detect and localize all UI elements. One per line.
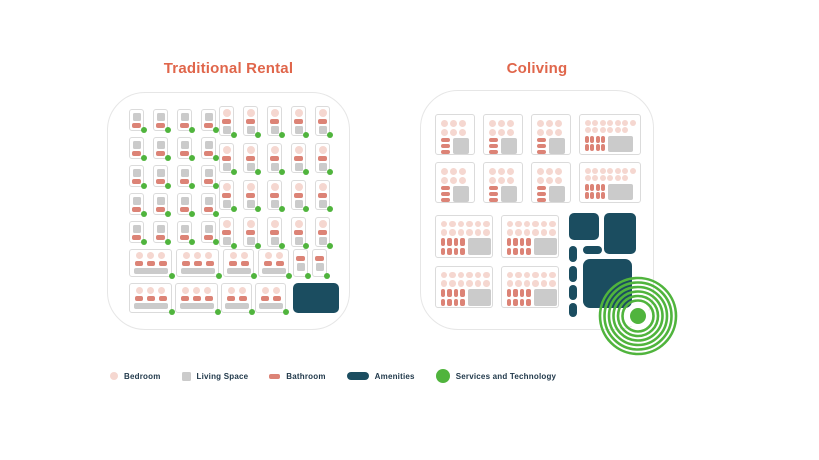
- bathroom-bar-icon: [489, 144, 498, 148]
- living-space-icon: [223, 163, 231, 171]
- bathroom-bar-icon: [526, 299, 531, 307]
- bathroom-bar-icon: [513, 238, 518, 246]
- bedroom-dot-icon: [585, 175, 591, 181]
- bathroom-bar-icon: [537, 186, 546, 190]
- bedroom-dot-icon: [319, 109, 327, 117]
- bathroom-bar-icon: [180, 207, 189, 212]
- legend-item: Services and Technology: [436, 369, 556, 383]
- bathroom-bar-icon: [489, 186, 498, 190]
- bedroom-dot-icon: [541, 221, 548, 228]
- amenities-block: [604, 213, 636, 254]
- bedroom-dot-icon: [546, 168, 553, 175]
- bedroom-dot-icon: [537, 129, 544, 136]
- living-space-icon: [319, 237, 327, 245]
- bedroom-dot-icon: [247, 183, 255, 191]
- bathroom-bar-icon: [441, 192, 450, 196]
- bathroom-bar-icon: [526, 238, 531, 246]
- service-dot-icon: [213, 183, 219, 189]
- bedroom-dot-icon: [600, 175, 606, 181]
- bathroom-bar-icon: [318, 193, 327, 198]
- bedroom-dot-icon: [441, 168, 448, 175]
- service-dot-icon: [231, 169, 237, 175]
- bedroom-dot-icon: [483, 272, 490, 279]
- bathroom-bar-icon: [520, 248, 525, 256]
- bathroom-bar-icon: [590, 136, 594, 143]
- bedroom-dot-icon: [295, 183, 303, 191]
- traditional-rental-building: [107, 92, 350, 330]
- bathroom-bar-icon: [460, 248, 465, 256]
- legend: BedroomLiving SpaceBathroomAmenitiesServ…: [110, 369, 556, 383]
- service-dot-icon: [165, 211, 171, 217]
- bedroom-dot-icon: [136, 287, 143, 294]
- service-dot-icon: [213, 211, 219, 217]
- bedroom-dot-icon: [592, 168, 598, 174]
- bedroom-dot-icon: [600, 120, 606, 126]
- service-dot-icon: [213, 155, 219, 161]
- bathroom-bar-icon: [596, 136, 600, 143]
- bathroom-bar-icon: [489, 138, 498, 142]
- bedroom-dot-icon: [615, 168, 621, 174]
- service-dot-icon: [169, 309, 175, 315]
- apartment-unit: [175, 283, 218, 313]
- bedroom-dot-icon: [271, 146, 279, 154]
- unit-part-row: [264, 261, 284, 266]
- bedroom-dot-icon: [147, 287, 154, 294]
- bathroom-bar-icon: [489, 150, 498, 154]
- bathroom-bar-icon: [180, 151, 189, 156]
- studio-unit: [153, 221, 168, 243]
- coliving-suite-unit: [579, 114, 641, 155]
- studio-unit: [267, 143, 282, 173]
- unit-part-row: [227, 296, 247, 301]
- bathroom-bar-icon: [441, 144, 450, 148]
- bedroom-dot-icon: [546, 120, 553, 127]
- bathroom-bar-icon: [441, 198, 450, 202]
- bathroom-bar-icon: [246, 156, 255, 161]
- living-space-icon: [271, 163, 279, 171]
- amenities-block: [569, 213, 599, 240]
- bedroom-dot-icon: [524, 280, 531, 287]
- bathroom-bar-icon: [222, 156, 231, 161]
- studio-unit: [201, 165, 216, 187]
- suite-lower-row: [441, 138, 469, 154]
- service-dot-icon: [165, 155, 171, 161]
- bathroom-bar-icon: [441, 138, 450, 142]
- bathroom-bar-icon: [441, 248, 446, 256]
- bathroom-bar-icon: [132, 207, 141, 212]
- unit-part-row: [136, 252, 165, 259]
- bathroom-bar-icon: [270, 193, 279, 198]
- apartment-unit: [176, 249, 219, 277]
- bedroom-dot-icon: [223, 183, 231, 191]
- bathroom-bar-icon: [318, 156, 327, 161]
- living-space-icon: [223, 237, 231, 245]
- studio-unit: [153, 137, 168, 159]
- service-dot-icon: [279, 206, 285, 212]
- bedroom-dot-icon: [466, 280, 473, 287]
- suite-lower-row: [441, 186, 469, 202]
- living-space-icon: [549, 138, 565, 154]
- bathroom-bar-icon: [526, 248, 531, 256]
- bedroom-dot-icon: [592, 175, 598, 181]
- bathroom-bar-icon: [264, 261, 272, 266]
- studio-unit: [243, 180, 258, 210]
- bedroom-dot-icon: [607, 120, 613, 126]
- studio-unit: [219, 106, 234, 136]
- service-dot-icon: [327, 132, 333, 138]
- bedroom-dot-icon: [319, 183, 327, 191]
- bedroom-dot-icon: [450, 120, 457, 127]
- bedroom-dot-icon: [194, 252, 201, 259]
- bedroom-dot-icon: [585, 120, 591, 126]
- bedroom-dot-icon: [507, 221, 514, 228]
- bathroom-bar-icon: [585, 192, 589, 199]
- bedroom-dot-icon: [204, 287, 211, 294]
- bedroom-dot-icon: [441, 221, 448, 228]
- service-dot-icon: [165, 183, 171, 189]
- bathroom-bar-icon: [276, 261, 284, 266]
- service-dot-icon: [303, 132, 309, 138]
- coliving-suite-unit: [435, 266, 493, 308]
- bedroom-dot-icon: [441, 272, 448, 279]
- bedroom-dot-icon: [319, 220, 327, 228]
- bedroom-dot-icon: [441, 120, 448, 127]
- bathroom-bar-icon: [537, 192, 546, 196]
- bedroom-dot-icon: [541, 280, 548, 287]
- living-space-icon: [157, 113, 165, 121]
- bedroom-dot-icon: [600, 168, 606, 174]
- bathroom-bar-icon: [537, 198, 546, 202]
- coliving-title: Coliving: [420, 60, 654, 77]
- bathroom-bar-icon: [222, 230, 231, 235]
- living-space-icon: [157, 141, 165, 149]
- bathroom-bar-icon: [489, 192, 498, 196]
- studio-unit: [243, 217, 258, 247]
- traditional-rental-title: Traditional Rental: [107, 60, 350, 77]
- unit-part-row: [182, 261, 214, 266]
- living-space-square-icon: [182, 372, 191, 381]
- bathroom-bar-column: [489, 186, 498, 202]
- bedroom-dot-grid: [537, 120, 562, 136]
- legend-label: Bedroom: [124, 372, 161, 381]
- living-space-icon: [223, 200, 231, 208]
- bathroom-bar-icon: [590, 192, 594, 199]
- studio-unit: [243, 143, 258, 173]
- living-space-icon: [271, 126, 279, 134]
- bedroom-dot-grid: [537, 168, 562, 184]
- bedroom-dot-icon: [441, 177, 448, 184]
- bathroom-bar-icon: [590, 144, 594, 151]
- bathroom-bar-icon: [204, 179, 213, 184]
- living-space-icon: [133, 197, 141, 205]
- bathroom-bar-icon: [156, 123, 165, 128]
- unit-part-row: [135, 261, 167, 266]
- living-space-icon: [157, 225, 165, 233]
- bedroom-dot-icon: [555, 129, 562, 136]
- bathroom-bar-grid: [585, 136, 606, 152]
- living-space-icon: [468, 238, 491, 255]
- bathroom-bar-icon: [222, 193, 231, 198]
- bedroom-dot-icon: [549, 221, 556, 228]
- bathroom-bar-icon: [601, 136, 605, 143]
- bedroom-dot-icon: [532, 280, 539, 287]
- bathroom-bar-icon: [596, 184, 600, 191]
- bedroom-dot-icon: [532, 229, 539, 236]
- studio-unit: [201, 221, 216, 243]
- bathroom-bar-icon: [315, 256, 324, 261]
- bathroom-bar-icon: [526, 289, 531, 297]
- living-space-icon: [205, 113, 213, 121]
- living-space-icon: [608, 184, 633, 200]
- bedroom-dot-icon: [537, 168, 544, 175]
- studio-unit: [291, 106, 306, 136]
- service-dot-icon: [189, 239, 195, 245]
- suite-lower-row: [507, 238, 557, 255]
- bathroom-bar-icon: [454, 248, 459, 256]
- unit-part-row: [262, 287, 280, 294]
- bedroom-dot-icon: [295, 109, 303, 117]
- bedroom-dot-icon: [271, 109, 279, 117]
- living-space-icon: [247, 126, 255, 134]
- bedroom-dot-grid: [441, 168, 466, 184]
- living-space-icon: [133, 113, 141, 121]
- service-dot-icon: [231, 206, 237, 212]
- service-dot-icon: [141, 239, 147, 245]
- bathroom-bar-icon: [132, 179, 141, 184]
- service-dot-icon: [189, 211, 195, 217]
- studio-unit: [267, 180, 282, 210]
- studio-unit: [291, 143, 306, 173]
- services-technology-target-icon: [595, 273, 681, 359]
- bedroom-dot-icon: [183, 252, 190, 259]
- bathroom-bar-icon: [601, 184, 605, 191]
- studio-unit: [315, 180, 330, 210]
- bathroom-bar-column: [537, 138, 546, 154]
- bedroom-dot-icon: [541, 272, 548, 279]
- bedroom-dot-icon: [607, 127, 613, 133]
- bathroom-bar-icon: [441, 186, 450, 190]
- studio-unit: [315, 217, 330, 247]
- bedroom-dot-icon: [622, 120, 628, 126]
- studio-unit: [177, 221, 192, 243]
- bedroom-dot-icon: [549, 280, 556, 287]
- bedroom-dot-icon: [630, 120, 636, 126]
- bathroom-bar-icon: [269, 374, 280, 379]
- bathroom-bar-icon: [596, 144, 600, 151]
- living-space-icon: [225, 303, 249, 309]
- bathroom-bar-grid: [507, 238, 531, 255]
- bathroom-bar-icon: [147, 296, 155, 301]
- service-dot-icon: [324, 273, 330, 279]
- bedroom-dot-icon: [600, 127, 606, 133]
- studio-unit: [291, 180, 306, 210]
- bedroom-dot-icon: [532, 221, 539, 228]
- bedroom-dot-icon: [295, 220, 303, 228]
- living-space-icon: [468, 289, 491, 306]
- bathroom-bar-icon: [246, 230, 255, 235]
- studio-unit: [177, 137, 192, 159]
- service-dot-icon: [255, 169, 261, 175]
- bathroom-bar-icon: [222, 119, 231, 124]
- living-space-icon: [295, 163, 303, 171]
- legend-item: Bedroom: [110, 372, 161, 381]
- studio-unit: [177, 109, 192, 131]
- service-dot-icon: [255, 132, 261, 138]
- living-space-icon: [133, 225, 141, 233]
- bathroom-bar-grid: [441, 289, 465, 306]
- coliving-suite-unit: [501, 215, 559, 258]
- bedroom-dot-icon: [475, 272, 482, 279]
- studio-unit: [291, 217, 306, 247]
- bathroom-bar-icon: [135, 261, 143, 266]
- bathroom-bar-icon: [460, 238, 465, 246]
- unit-part-row: [181, 296, 213, 301]
- bathroom-bar-icon: [204, 123, 213, 128]
- studio-unit: [177, 165, 192, 187]
- living-space-icon: [259, 303, 283, 309]
- bedroom-dot-icon: [622, 168, 628, 174]
- bedroom-dot-icon: [489, 168, 496, 175]
- amenities-block: [583, 246, 602, 254]
- bathroom-bar-icon: [205, 296, 213, 301]
- bedroom-dot-icon: [524, 221, 531, 228]
- bedroom-dot-grid: [507, 272, 556, 287]
- living-space-icon: [501, 138, 517, 154]
- living-space-icon: [247, 163, 255, 171]
- bedroom-dot-icon: [449, 221, 456, 228]
- bedroom-dot-icon: [541, 229, 548, 236]
- service-dot-icon: [213, 239, 219, 245]
- bedroom-dot-icon: [241, 252, 248, 259]
- bedroom-dot-icon: [466, 272, 473, 279]
- bedroom-dot-icon: [441, 229, 448, 236]
- bedroom-dot-icon: [489, 177, 496, 184]
- bedroom-dot-icon: [466, 221, 473, 228]
- bathroom-bar-icon: [520, 299, 525, 307]
- bathroom-bar-grid: [507, 289, 531, 306]
- suite-lower-row: [507, 289, 557, 306]
- bedroom-dot-icon: [459, 129, 466, 136]
- studio-unit: [219, 180, 234, 210]
- unit-part-row: [135, 296, 167, 301]
- bedroom-dot-icon: [498, 129, 505, 136]
- service-dot-icon: [189, 183, 195, 189]
- bedroom-dot-icon: [458, 221, 465, 228]
- bedroom-dot-icon: [459, 177, 466, 184]
- coliving-suite-unit: [531, 114, 571, 155]
- studio-unit: [129, 137, 144, 159]
- living-space-icon: [297, 263, 305, 271]
- bedroom-dot-icon: [276, 252, 283, 259]
- suite-lower-row: [441, 238, 491, 255]
- bathroom-bar-icon: [441, 299, 446, 307]
- bedroom-dot-icon: [549, 272, 556, 279]
- bathroom-bar-icon: [181, 296, 189, 301]
- bedroom-dot-icon: [459, 120, 466, 127]
- living-space-icon: [133, 141, 141, 149]
- living-space-icon: [181, 113, 189, 121]
- bathroom-bar-icon: [585, 184, 589, 191]
- bathroom-bar-icon: [537, 138, 546, 142]
- bedroom-dot-icon: [271, 183, 279, 191]
- bathroom-bar-icon: [454, 289, 459, 297]
- bathroom-bar-column: [441, 186, 450, 202]
- bedroom-dot-icon: [537, 177, 544, 184]
- bedroom-dot-grid: [441, 120, 466, 136]
- living-space-icon: [549, 186, 565, 202]
- bathroom-bar-icon: [520, 289, 525, 297]
- living-space-icon: [180, 303, 214, 309]
- bedroom-dot-icon: [223, 146, 231, 154]
- amenities-block: [293, 283, 339, 313]
- suite-lower-row: [585, 184, 634, 200]
- unit-part-row: [230, 252, 248, 259]
- living-space-icon: [534, 289, 557, 306]
- legend-item: Bathroom: [269, 372, 325, 381]
- suite-lower-row: [585, 136, 634, 152]
- service-dot-icon: [141, 211, 147, 217]
- service-dot-icon: [279, 169, 285, 175]
- studio-unit: [129, 109, 144, 131]
- studio-unit: [267, 217, 282, 247]
- bathroom-bar-icon: [296, 256, 305, 261]
- bedroom-dot-grid: [507, 221, 556, 236]
- living-space-icon: [133, 169, 141, 177]
- bedroom-dot-icon: [555, 177, 562, 184]
- coliving-comparison-infographic: Traditional Rental Coliving BedroomLivin…: [0, 0, 819, 460]
- living-space-icon: [271, 237, 279, 245]
- studio-unit: [315, 106, 330, 136]
- service-dot-icon: [327, 169, 333, 175]
- apartment-unit: [293, 249, 308, 277]
- studio-unit: [201, 137, 216, 159]
- bedroom-dot-icon: [319, 146, 327, 154]
- bedroom-dot-icon: [458, 229, 465, 236]
- bathroom-bar-icon: [441, 238, 446, 246]
- living-space-icon: [181, 169, 189, 177]
- bathroom-bar-icon: [180, 123, 189, 128]
- bedroom-dot-icon: [295, 146, 303, 154]
- living-space-icon: [134, 268, 168, 274]
- bathroom-bar-icon: [507, 289, 512, 297]
- bathroom-bar-icon: [135, 296, 143, 301]
- bedroom-dot-icon: [449, 272, 456, 279]
- legend-item: Amenities: [347, 372, 415, 381]
- bedroom-dot-icon: [458, 280, 465, 287]
- bathroom-bar-icon: [261, 296, 269, 301]
- living-space-icon: [534, 238, 557, 255]
- service-dot-icon: [303, 169, 309, 175]
- bedroom-dot-icon: [483, 280, 490, 287]
- bedroom-dot-icon: [247, 220, 255, 228]
- bedroom-dot-icon: [585, 127, 591, 133]
- bedroom-dot-icon: [273, 287, 280, 294]
- bathroom-bar-icon: [270, 119, 279, 124]
- bedroom-dot-icon: [532, 272, 539, 279]
- service-dot-icon: [189, 127, 195, 133]
- bathroom-bar-icon: [156, 179, 165, 184]
- bedroom-dot-icon: [546, 177, 553, 184]
- living-space-icon: [205, 141, 213, 149]
- living-space-icon: [295, 126, 303, 134]
- bathroom-bar-icon: [294, 119, 303, 124]
- service-dot-icon: [189, 155, 195, 161]
- legend-label: Amenities: [375, 372, 415, 381]
- bedroom-dot-icon: [247, 109, 255, 117]
- bathroom-bar-icon: [294, 193, 303, 198]
- bedroom-dot-icon: [555, 168, 562, 175]
- legend-label: Services and Technology: [456, 372, 556, 381]
